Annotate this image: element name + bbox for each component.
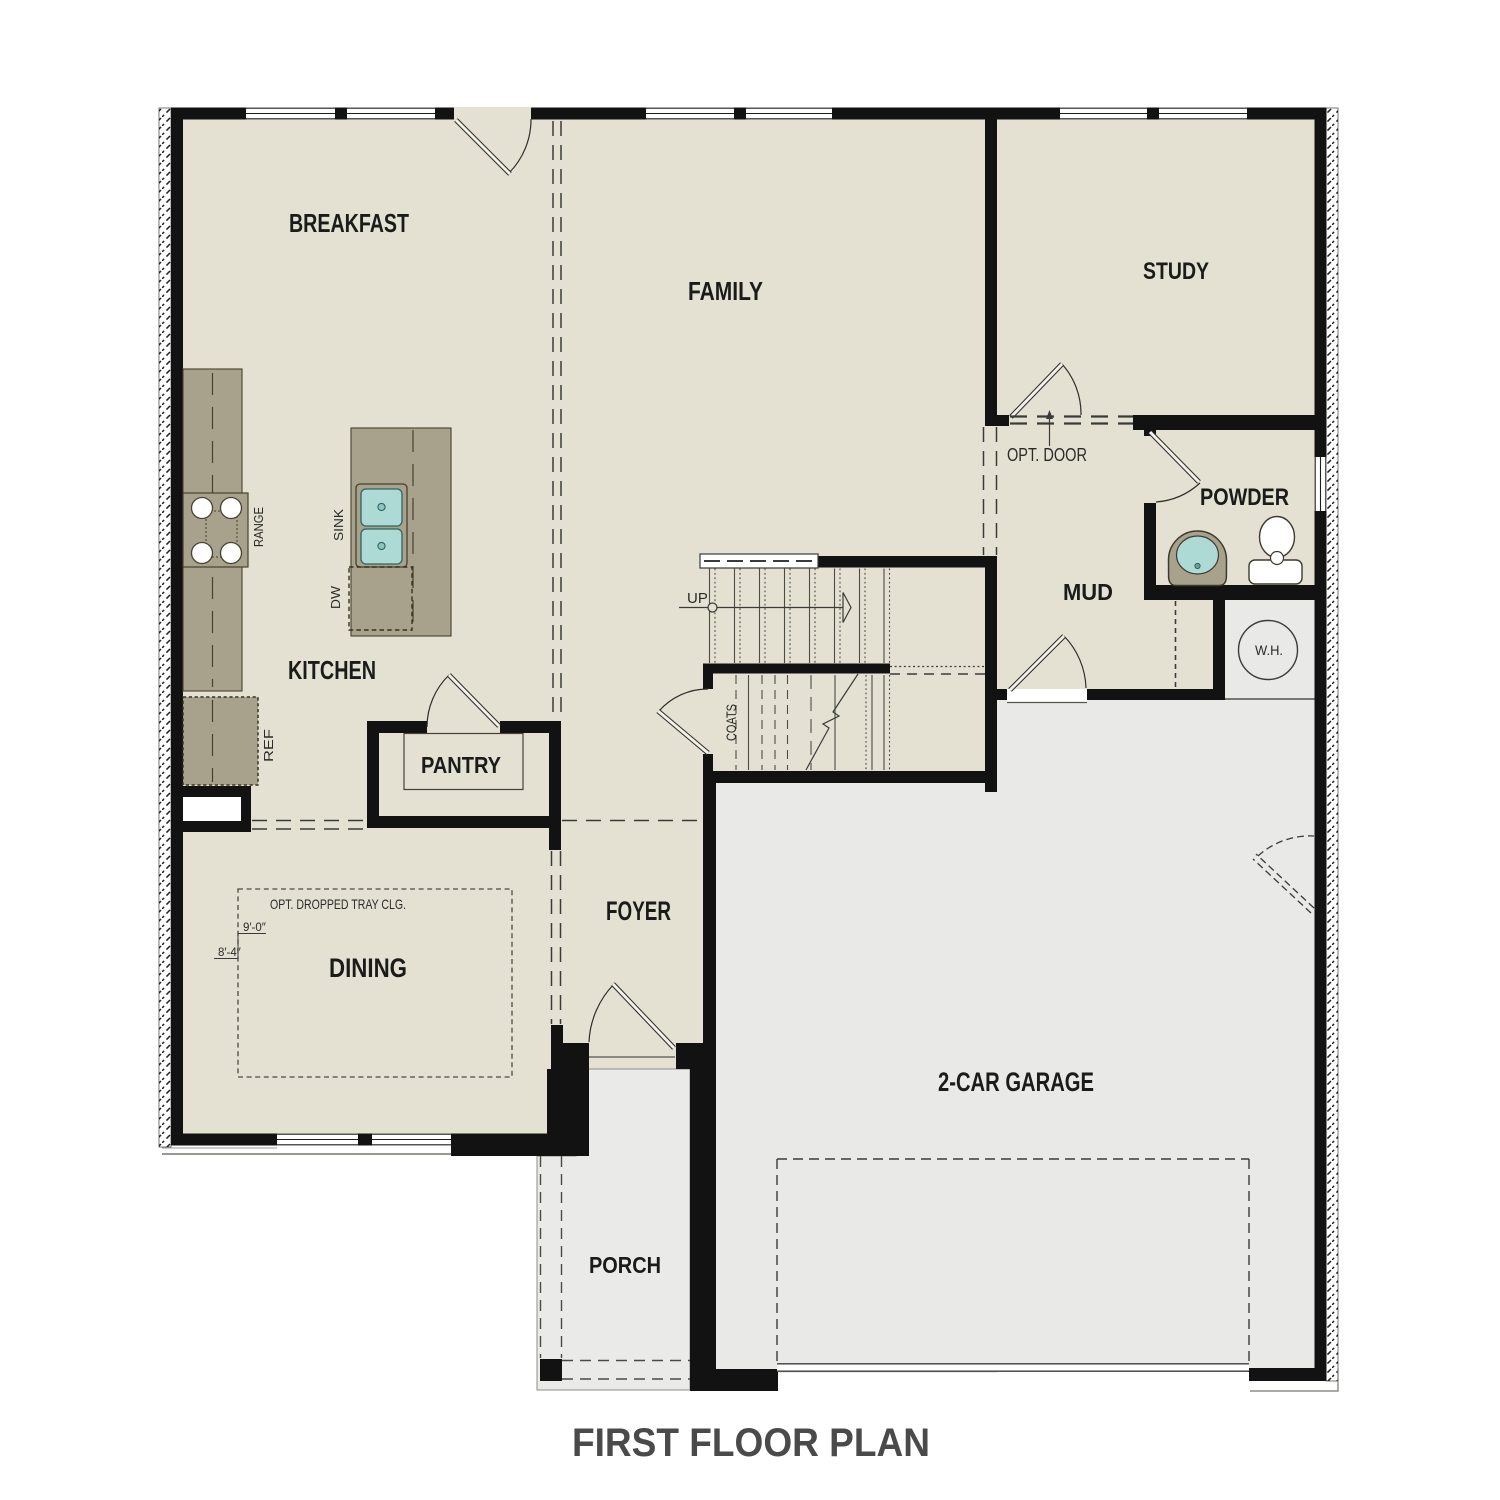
svg-text:BREAKFAST: BREAKFAST (289, 208, 409, 238)
svg-text:REF: REF (261, 729, 276, 762)
svg-text:OPT. DOOR: OPT. DOOR (1007, 445, 1087, 465)
svg-text:W.H.: W.H. (1255, 643, 1283, 658)
svg-text:2-CAR GARAGE: 2-CAR GARAGE (938, 1067, 1094, 1097)
svg-text:PORCH: PORCH (589, 1252, 661, 1278)
svg-text:PANTRY: PANTRY (421, 752, 501, 778)
svg-text:RANGE: RANGE (251, 507, 266, 547)
svg-text:DW: DW (328, 585, 343, 609)
svg-text:FAMILY: FAMILY (688, 276, 763, 306)
svg-text:FIRST FLOOR PLAN: FIRST FLOOR PLAN (572, 1421, 930, 1465)
svg-text:FOYER: FOYER (606, 896, 671, 926)
svg-text:UP: UP (687, 590, 708, 607)
svg-text:POWDER: POWDER (1200, 484, 1289, 511)
svg-text:COATS: COATS (723, 704, 739, 741)
svg-text:MUD: MUD (1063, 579, 1113, 605)
svg-text:SINK: SINK (331, 509, 346, 541)
svg-text:OPT. DROPPED TRAY CLG.: OPT. DROPPED TRAY CLG. (270, 896, 406, 912)
svg-text:KITCHEN: KITCHEN (288, 655, 376, 685)
svg-text:STUDY: STUDY (1143, 258, 1209, 285)
svg-text:9′-0″: 9′-0″ (243, 922, 266, 934)
svg-text:DINING: DINING (329, 953, 407, 983)
svg-text:8′-4″: 8′-4″ (218, 947, 241, 959)
